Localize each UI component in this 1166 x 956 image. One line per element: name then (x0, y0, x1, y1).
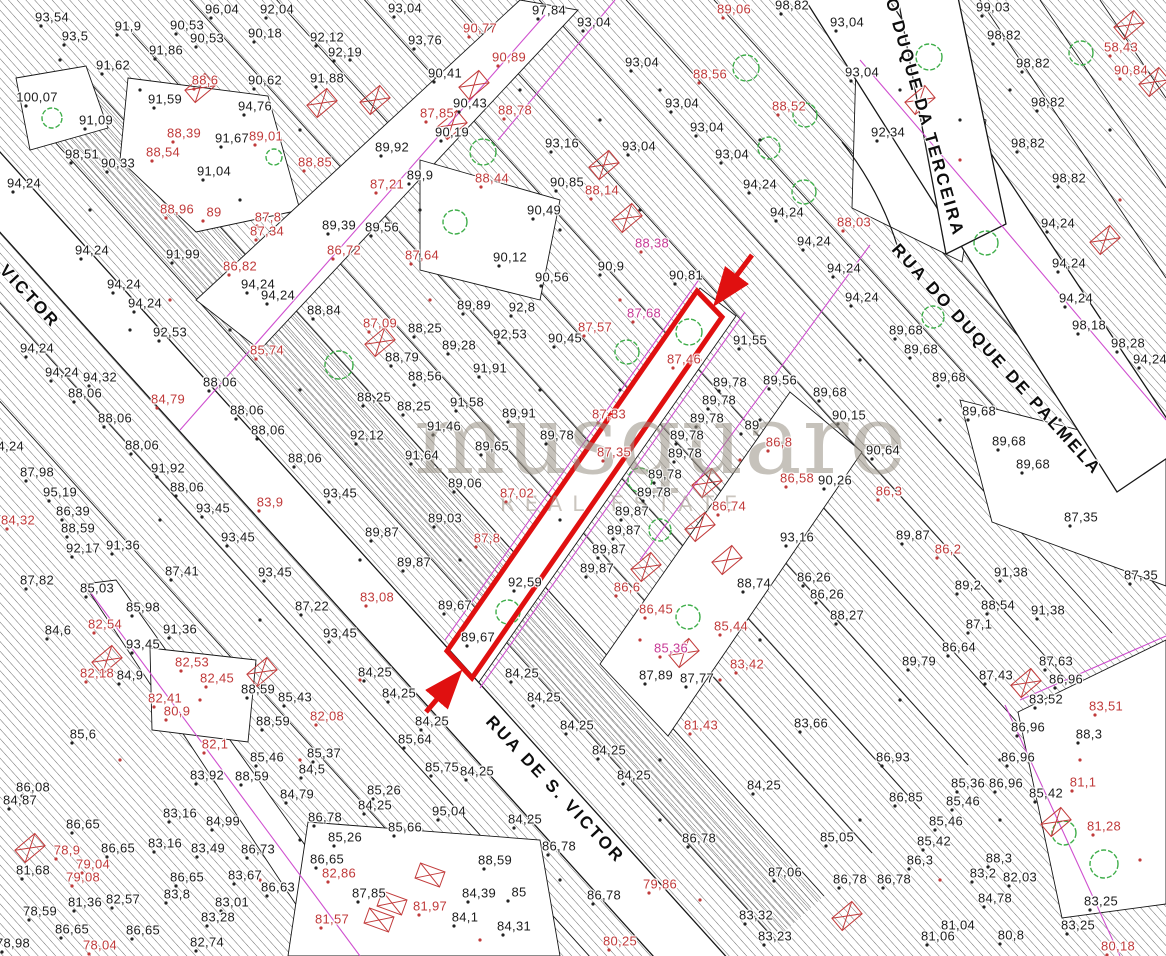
elevation-label: 80,25 (603, 934, 637, 949)
elevation-label: 95,04 (432, 804, 466, 819)
elevation-label: 94,24 (107, 277, 141, 292)
elevation-label: 81,68 (16, 863, 50, 878)
elevation-label: 91,86 (149, 43, 183, 58)
elevation-label: 94,24 (128, 296, 162, 311)
elevation-label: 90,62 (248, 73, 282, 88)
elevation-label: 88,06 (203, 375, 237, 390)
elevation-label: 93,45 (221, 530, 255, 545)
elevation-label: 87,06 (768, 865, 802, 880)
elevation-label: 88,59 (235, 769, 269, 784)
elevation-label: 86,3 (876, 484, 903, 499)
elevation-label: 86,78 (542, 839, 576, 854)
elevation-label: 91,38 (1031, 603, 1065, 618)
elevation-label: 93,04 (715, 147, 749, 162)
elevation-label: 89,56 (763, 373, 797, 388)
elevation-label: 89,06 (717, 2, 751, 17)
elevation-label: 94,24 (45, 365, 79, 380)
elevation-label: 98,18 (1072, 318, 1106, 333)
elevation-label: 84,5 (299, 762, 326, 777)
elevation-label: 85,37 (307, 746, 341, 761)
elevation-label: 89,9 (407, 168, 434, 183)
elevation-label: 86,85 (889, 790, 923, 805)
elevation-label: 88,25 (408, 321, 442, 336)
elevation-label: 88,96 (160, 202, 194, 217)
elevation-label: 89,78 (540, 428, 574, 443)
elevation-label: 83,25 (1061, 918, 1095, 933)
elevation-label: 100,07 (16, 90, 58, 105)
elevation-label: 86,26 (810, 587, 844, 602)
elevation-label: 93,54 (35, 10, 69, 25)
elevation-label: 88,06 (251, 423, 285, 438)
elevation-label: 88,85 (298, 155, 332, 170)
elevation-label: 83,9 (257, 495, 284, 510)
elevation-label: 93,5 (62, 29, 89, 44)
elevation-label: 90,64 (866, 443, 900, 458)
elevation-label: 84,6 (45, 623, 72, 638)
elevation-label: 82,53 (175, 655, 209, 670)
elevation-label: 82,57 (106, 892, 140, 907)
street-name-label: O DUQUE DA TERCEIRA (881, 0, 968, 239)
elevation-label: 92,53 (153, 325, 187, 340)
elevation-label: 90,33 (101, 156, 135, 171)
elevation-label: 78,98 (0, 936, 30, 951)
elevation-label: 93,45 (196, 501, 230, 516)
elevation-label: 87,57 (578, 320, 612, 335)
elevation-label: 94,24 (797, 234, 831, 249)
elevation-label: 86,65 (170, 870, 204, 885)
elevation-label: 91,36 (106, 538, 140, 553)
elevation-label: 90,56 (535, 270, 569, 285)
elevation-label: 83,23 (758, 929, 792, 944)
elevation-label: 93,04 (845, 65, 879, 80)
elevation-label: 88,54 (981, 598, 1015, 613)
elevation-label: 88,59 (61, 521, 95, 536)
elevation-label: 92,34 (871, 125, 905, 140)
elevation-label: 91,36 (163, 622, 197, 637)
elevation-label: 88,59 (478, 853, 512, 868)
elevation-label: 83,32 (739, 908, 773, 923)
elevation-label: 89,65 (475, 439, 509, 454)
elevation-label: 83,52 (1029, 692, 1063, 707)
elevation-label: 86,2 (935, 542, 962, 557)
elevation-label: 92,12 (310, 30, 344, 45)
elevation-label: 87,34 (250, 224, 284, 239)
elevation-label: 87,22 (295, 599, 329, 614)
elevation-label: 94,24 (20, 341, 54, 356)
elevation-label: 78,59 (23, 904, 57, 919)
elevation-label: 82,74 (190, 935, 224, 950)
elevation-label: 89,78 (670, 428, 704, 443)
elevation-label: 89,2 (955, 578, 982, 593)
elevation-label: 86,78 (587, 888, 621, 903)
elevation-label: 88,56 (408, 369, 442, 384)
elevation-label: 86,74 (712, 499, 746, 514)
elevation-label: 94,24 (7, 176, 41, 191)
elevation-label: 82,08 (310, 709, 344, 724)
elevation-label: 94,24 (1041, 216, 1075, 231)
elevation-label: 91,46 (427, 419, 461, 434)
elevation-label: 88,79 (385, 350, 419, 365)
elevation-label: 93,04 (577, 15, 611, 30)
elevation-label: 86,78 (308, 810, 342, 825)
elevation-label: 87,89 (639, 668, 673, 683)
elevation-label: 92,12 (350, 428, 384, 443)
elevation-label: 87,64 (405, 248, 439, 263)
elevation-label: 93,04 (625, 55, 659, 70)
elevation-label: 86,64 (942, 640, 976, 655)
elevation-label: 89 (206, 205, 221, 220)
elevation-label: 98,82 (775, 0, 809, 13)
elevation-label: 89,68 (992, 434, 1026, 449)
elevation-label: 85,05 (820, 830, 854, 845)
elevation-label: 83,25 (1084, 894, 1118, 909)
elevation-label: 88,06 (230, 403, 264, 418)
elevation-label: 89,78 (668, 446, 702, 461)
elevation-label: 82,18 (80, 666, 114, 681)
elevation-label: 84,25 (505, 666, 539, 681)
elevation-label: 83,8 (164, 887, 191, 902)
elevation-label: 90,12 (493, 250, 527, 265)
elevation-label: 85,03 (80, 581, 114, 596)
elevation-label: 86,8 (766, 435, 793, 450)
elevation-label: 88,25 (397, 399, 431, 414)
street-name-label: DE S. VICTOR (0, 214, 64, 332)
elevation-label: 91,9 (115, 19, 142, 34)
elevation-label: 86,26 (797, 570, 831, 585)
elevation-label: 82,1 (202, 737, 229, 752)
elevation-label: 88,52 (772, 99, 806, 114)
elevation-label: 89,87 (397, 555, 431, 570)
elevation-label: 92,17 (66, 541, 100, 556)
elevation-label: 85,44 (714, 619, 748, 634)
elevation-label: 92,04 (260, 2, 294, 17)
elevation-label: 84,25 (592, 743, 626, 758)
elevation-label: 87,85 (352, 886, 386, 901)
elevation-label: 83,08 (360, 590, 394, 605)
elevation-label: 85,43 (278, 690, 312, 705)
elevation-label: 78,9 (54, 843, 81, 858)
elevation-label: 87,8 (474, 531, 501, 546)
elevation-label: 87,1 (966, 617, 993, 632)
elevation-label: 87,41 (165, 564, 199, 579)
elevation-label: 84,87 (3, 793, 37, 808)
elevation-label: 85,74 (250, 343, 284, 358)
elevation-label: 85,46 (250, 750, 284, 765)
elevation-label: 81,06 (921, 929, 955, 944)
elevation-label: 93,04 (622, 139, 656, 154)
elevation-label: 89,68 (904, 342, 938, 357)
elevation-label: 98,82 (1016, 56, 1050, 71)
elevation-label: 91,91 (473, 361, 507, 376)
elevation-label: 84,79 (280, 787, 314, 802)
elevation-label: 88,54 (146, 145, 180, 160)
elevation-label: 84,25 (617, 768, 651, 783)
elevation-label: 83,16 (148, 836, 182, 851)
elevation-label: 91,92 (151, 461, 185, 476)
elevation-label: 92,59 (508, 575, 542, 590)
elevation-label: 89,68 (1016, 457, 1050, 472)
elevation-label: 87,09 (363, 316, 397, 331)
elevation-label: 86,39 (56, 504, 90, 519)
elevation-label: 87,82 (20, 573, 54, 588)
elevation-label: 92,19 (328, 45, 362, 60)
elevation-label: 87,02 (500, 486, 534, 501)
elevation-label: 87,8 (255, 210, 282, 225)
elevation-label: 88,06 (170, 480, 204, 495)
elevation-label: 90,45 (548, 331, 582, 346)
elevation-label: 86,72 (327, 243, 361, 258)
elevation-label: 91,59 (148, 92, 182, 107)
elevation-label: 89,68 (889, 323, 923, 338)
elevation-label: 88,38 (635, 236, 669, 251)
elevation-label: 96,04 (205, 2, 239, 17)
elevation-label: 89,39 (322, 218, 356, 233)
elevation-label: 89,79 (902, 654, 936, 669)
elevation-label: 91,62 (96, 58, 130, 73)
elevation-label: 89,03 (428, 511, 462, 526)
elevation-label: 88,84 (307, 303, 341, 318)
elevation-label: 84,25 (508, 812, 542, 827)
elevation-label: 90,85 (550, 175, 584, 190)
elevation-label: 81,43 (684, 718, 718, 733)
elevation-label: 86,93 (876, 750, 910, 765)
elevation-label: 86,3 (907, 853, 934, 868)
elevation-label: 88,3 (1076, 727, 1103, 742)
elevation-label: 93,76 (408, 33, 442, 48)
elevation-label: 89,67 (438, 598, 472, 613)
elevation-label: 94,24 (0, 439, 24, 454)
elevation-label: 89,68 (962, 404, 996, 419)
elevation-label: 90,19 (435, 125, 469, 140)
elevation-label: 85,26 (328, 830, 362, 845)
elevation-label: 91,88 (310, 71, 344, 86)
elevation-label: 89,87 (365, 525, 399, 540)
elevation-label: 83,92 (190, 768, 224, 783)
elevation-label: 80,8 (998, 928, 1025, 943)
elevation-label: 93,16 (545, 136, 579, 151)
elevation-label: 85,46 (946, 794, 980, 809)
elevation-label: 80,18 (1101, 939, 1135, 954)
elevation-label: 80,9 (164, 704, 191, 719)
elevation-label: 97,84 (532, 3, 566, 18)
elevation-label: 99,03 (976, 0, 1010, 15)
elevation-label: 86,78 (877, 872, 911, 887)
elevation-label: 91,38 (994, 565, 1028, 580)
elevation-label: 84,32 (1, 513, 35, 528)
elevation-label: 89,01 (249, 129, 283, 144)
elevation-label: 89,06 (448, 476, 482, 491)
elevation-label: 88,06 (68, 386, 102, 401)
elevation-label: 85,6 (70, 727, 97, 742)
elevation-label: 87,85 (420, 106, 454, 121)
elevation-label: 84,25 (382, 686, 416, 701)
elevation-label: 85,66 (388, 820, 422, 835)
elevation-label: 93,45 (323, 486, 357, 501)
elevation-label: 93,16 (780, 530, 814, 545)
elevation-label: 91,55 (733, 333, 767, 348)
elevation-label: 79,08 (66, 870, 100, 885)
elevation-label: 89,89 (457, 298, 491, 313)
elevation-label: 85,64 (398, 732, 432, 747)
elevation-label: 88,74 (737, 576, 771, 591)
elevation-label: 85,42 (917, 834, 951, 849)
elevation-label: 91,67 (215, 131, 249, 146)
elevation-label: 84,25 (358, 798, 392, 813)
cadastral-map[interactable]: musquare REAL ESTATE 93,5496,0492,0491,9… (0, 0, 1166, 956)
elevation-label: 84,99 (206, 814, 240, 829)
elevation-label: 86,78 (682, 831, 716, 846)
elevation-label: 88,03 (837, 215, 871, 230)
elevation-label: 88,25 (357, 390, 391, 405)
elevation-label: 89,56 (365, 220, 399, 235)
elevation-label: 81,36 (68, 895, 102, 910)
elevation-label: 86,63 (261, 880, 295, 895)
elevation-label: 94,24 (75, 243, 109, 258)
elevation-label: 84,25 (358, 665, 392, 680)
elevation-label: 83,67 (228, 868, 262, 883)
elevation-label: 81,28 (1087, 819, 1121, 834)
elevation-label: 87,68 (627, 306, 661, 321)
elevation-label: 85,26 (367, 783, 401, 798)
elevation-label: 94,24 (1052, 256, 1086, 271)
elevation-label: 85,98 (126, 600, 160, 615)
elevation-label: 89,92 (375, 140, 409, 155)
elevation-label: 89,67 (461, 630, 495, 645)
elevation-label: 93,04 (388, 1, 422, 16)
elevation-label: 86,65 (55, 922, 89, 937)
elevation-label: 86,73 (241, 842, 275, 857)
elevation-label: 85,36 (951, 776, 985, 791)
elevation-label: 85,46 (929, 814, 963, 829)
elevation-label: 87,46 (667, 352, 701, 367)
elevation-label: 94,24 (261, 288, 295, 303)
elevation-label: 90,49 (527, 203, 561, 218)
elevation-label: 85,42 (1029, 786, 1063, 801)
elevation-label: 87,43 (979, 668, 1013, 683)
elevation-label: 58,43 (1104, 40, 1138, 55)
elevation-label: 93,04 (830, 15, 864, 30)
elevation-label: 89,68 (813, 385, 847, 400)
elevation-label: 92,8 (509, 300, 536, 315)
elevation-label: 90,9 (598, 259, 625, 274)
elevation-label: 90,53 (190, 31, 224, 46)
elevation-label: 94,24 (1133, 352, 1166, 367)
elevation-label: 87,21 (370, 177, 404, 192)
elevation-label: 89,87 (615, 504, 649, 519)
elevation-label: 88,78 (498, 103, 532, 118)
elevation-label: 89,78 (637, 485, 671, 500)
elevation-label: 90,18 (248, 26, 282, 41)
elevation-label: 94,24 (1059, 291, 1093, 306)
elevation-label: 95,19 (43, 485, 77, 500)
elevation-label: 82,54 (88, 617, 122, 632)
elevation-label: 83,42 (730, 657, 764, 672)
elevation-label: 88,06 (288, 451, 322, 466)
elevation-label: 89,78 (648, 467, 682, 482)
elevation-label: 88,56 (693, 67, 727, 82)
elevation-label: 81,97 (413, 899, 447, 914)
elevation-label: 94,76 (238, 99, 272, 114)
elevation-label: 78,04 (83, 938, 117, 953)
elevation-label: 84,9 (117, 668, 144, 683)
elevation-label: 98,28 (1111, 336, 1145, 351)
elevation-label: 84,1 (452, 910, 479, 925)
elevation-label: 89,87 (580, 561, 614, 576)
elevation-label: 88,39 (167, 126, 201, 141)
elevation-label: 87,63 (1039, 654, 1073, 669)
elevation-label: 84,78 (978, 891, 1012, 906)
elevation-label: 83,49 (191, 841, 225, 856)
elevation-label: 86,96 (989, 776, 1023, 791)
elevation-label: 89 (744, 418, 759, 433)
elevation-label: 88,3 (986, 851, 1013, 866)
elevation-label: 90,41 (428, 66, 462, 81)
elevation-label: 86,65 (126, 923, 160, 938)
elevation-label: 89,28 (442, 338, 476, 353)
elevation-label: 83,01 (215, 895, 249, 910)
elevation-label: 84,25 (460, 764, 494, 779)
elevation-label: 93,45 (323, 626, 357, 641)
elevation-label: 87,35 (1064, 510, 1098, 525)
elevation-label: 88,59 (256, 714, 290, 729)
elevation-label: 88,59 (241, 682, 275, 697)
elevation-label: 89,68 (932, 370, 966, 385)
elevation-label: 82,03 (1003, 870, 1037, 885)
elevation-label: 88,06 (98, 411, 132, 426)
elevation-label: 84,25 (527, 690, 561, 705)
elevation-label: 90,15 (832, 408, 866, 423)
elevation-label: 91,58 (450, 395, 484, 410)
elevation-label: 91,04 (197, 164, 231, 179)
elevation-label: 98,51 (65, 147, 99, 162)
elevation-label: 84,25 (747, 778, 781, 793)
elevation-label: 87,35 (597, 445, 631, 460)
elevation-label: 91,09 (79, 113, 113, 128)
elevation-label: 93,45 (126, 637, 160, 652)
elevation-label: 89,78 (702, 393, 736, 408)
elevation-label: 86,45 (639, 602, 673, 617)
elevation-label: 93,04 (690, 120, 724, 135)
elevation-label: 90,77 (463, 21, 497, 36)
elevation-label: 90,26 (818, 473, 852, 488)
elevation-label: 86,78 (833, 872, 867, 887)
elevation-label: 85 (511, 885, 526, 900)
elevation-label: 90,43 (453, 96, 487, 111)
elevation-label: 84,25 (415, 714, 449, 729)
elevation-label: 92,53 (493, 327, 527, 342)
elevation-label: 94,32 (83, 370, 117, 385)
elevation-label: 81,57 (315, 912, 349, 927)
elevation-label: 88,14 (585, 183, 619, 198)
elevation-label: 90,89 (492, 50, 526, 65)
elevation-label: 86,96 (1001, 750, 1035, 765)
elevation-label: 89,91 (502, 406, 536, 421)
elevation-label: 86,96 (1049, 672, 1083, 687)
elevation-label: 85,36 (654, 641, 688, 656)
elevation-label: 94,24 (827, 261, 861, 276)
labels-layer: 93,5496,0492,0491,990,5390,5393,590,1891… (0, 0, 1166, 956)
elevation-label: 86,6 (614, 580, 641, 595)
elevation-label: 83,2 (970, 866, 997, 881)
elevation-label: 83,28 (201, 910, 235, 925)
elevation-label: 84,31 (497, 919, 531, 934)
elevation-label: 87,98 (20, 465, 54, 480)
elevation-label: 88,27 (830, 608, 864, 623)
elevation-label: 98,82 (1052, 171, 1086, 186)
elevation-label: 84,39 (462, 886, 496, 901)
elevation-label: 86,82 (223, 259, 257, 274)
elevation-label: 93,04 (665, 96, 699, 111)
